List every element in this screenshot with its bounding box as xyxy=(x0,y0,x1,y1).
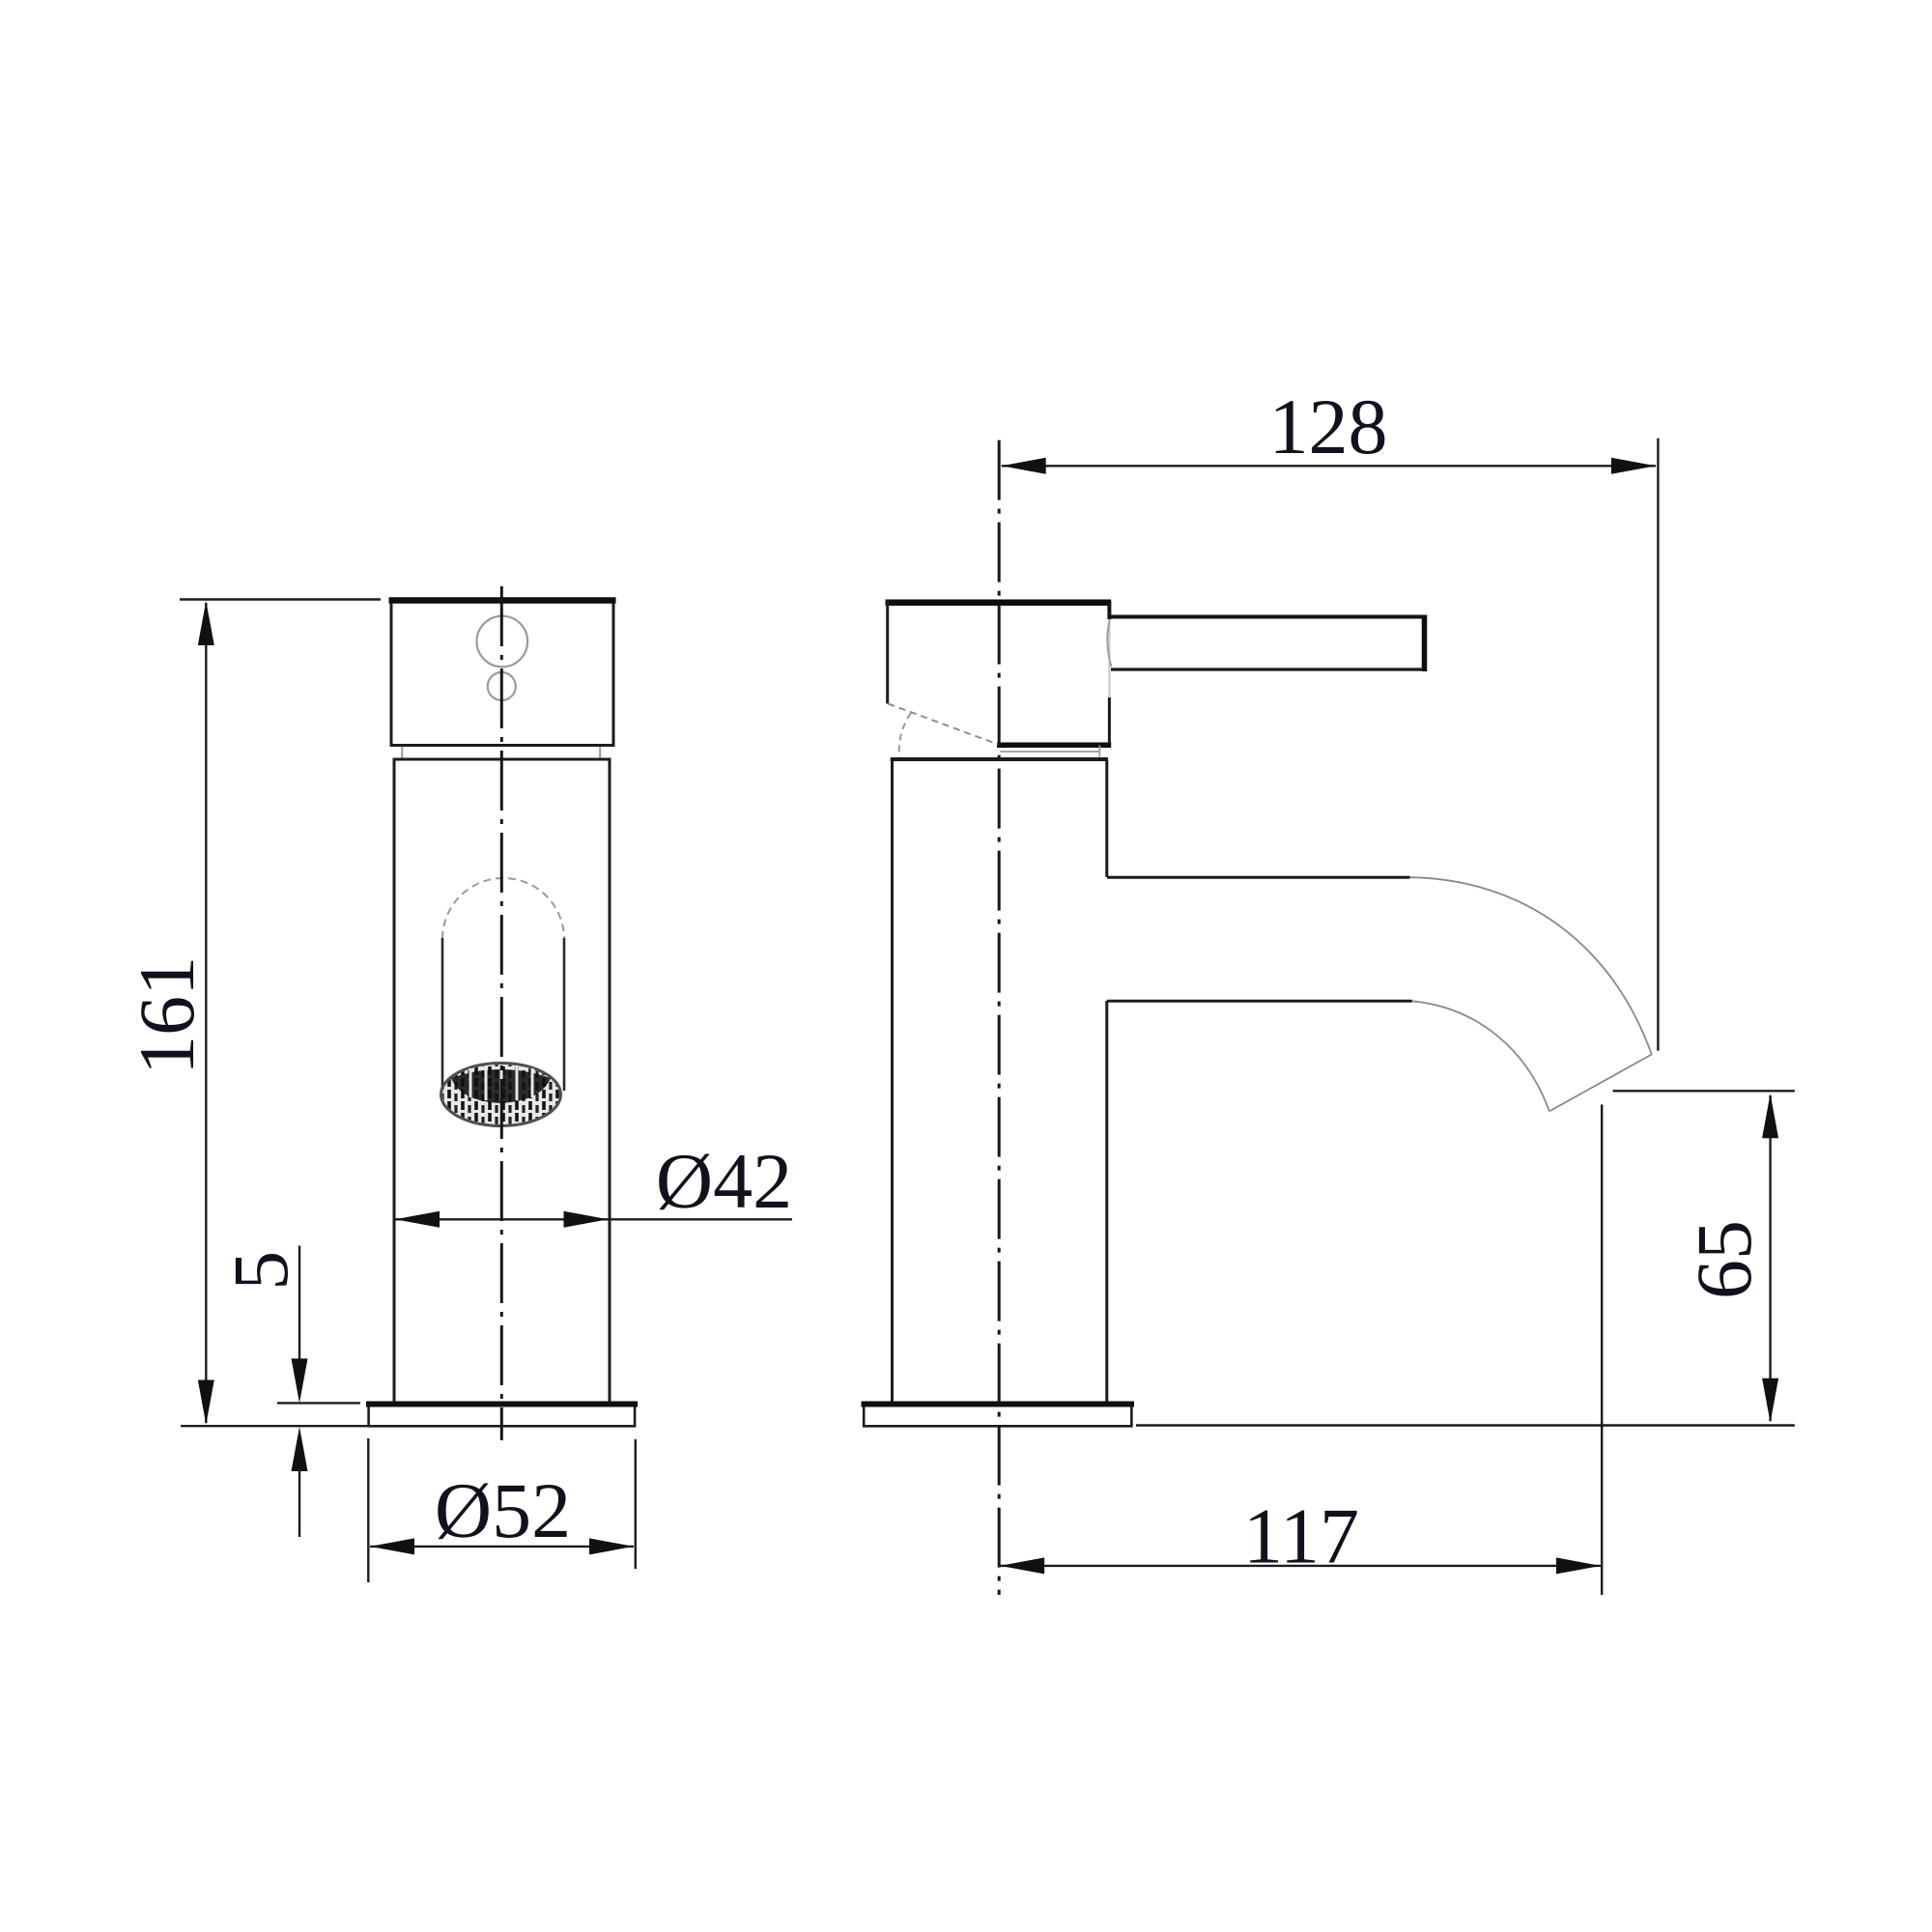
svg-text:161: 161 xyxy=(123,956,211,1075)
svg-text:128: 128 xyxy=(1269,383,1388,470)
svg-text:117: 117 xyxy=(1243,1492,1359,1580)
svg-text:Ø42: Ø42 xyxy=(656,1137,792,1225)
svg-text:5: 5 xyxy=(216,1251,304,1291)
svg-text:Ø52: Ø52 xyxy=(435,1466,571,1554)
svg-text:65: 65 xyxy=(1680,1220,1768,1299)
